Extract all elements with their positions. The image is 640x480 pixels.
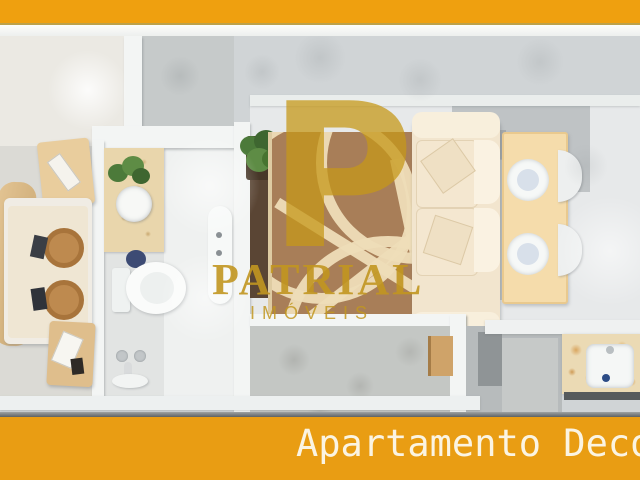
watermark-monogram: P (268, 78, 415, 278)
caption-text: Apartamento Deco (296, 424, 640, 465)
shower-head (112, 374, 148, 388)
entry-wall-block (478, 332, 502, 386)
wall-bottom (0, 396, 480, 410)
nightstand (46, 321, 95, 387)
round-tray-cushion (44, 228, 84, 268)
faucet-icon (606, 346, 614, 354)
wall-kitchen-top (485, 320, 640, 334)
sofa (412, 112, 504, 340)
round-tray-cushion (44, 280, 84, 320)
entry-floor-inner (502, 338, 558, 412)
plate (507, 233, 549, 275)
watermark-subtitle-text: IMÓVEIS (250, 304, 374, 322)
bathroom-upper-floor (142, 36, 234, 128)
wall-bathroom-top (92, 126, 234, 148)
duvet (8, 206, 88, 338)
floorplan-render: P PATRIAL IMÓVEIS (0, 36, 640, 412)
toilet (112, 262, 188, 316)
shower-fixture (110, 346, 156, 394)
plant-icon (108, 156, 152, 192)
sofa-back-cushion (474, 140, 500, 204)
top-orange-bar (0, 0, 640, 25)
kitchen-sink (586, 344, 634, 388)
drain-dispenser (602, 374, 610, 382)
dark-item (70, 358, 84, 375)
nightstand-item (47, 153, 81, 192)
watermark-brand-text: PATRIAL (212, 258, 425, 302)
caption-bar: Apartamento Deco (0, 417, 640, 480)
plate (507, 159, 549, 201)
counter-shadow-strip (564, 392, 640, 400)
listing-photo: P PATRIAL IMÓVEIS Apartamento Deco (0, 0, 640, 480)
sofa-armrest-top (412, 112, 500, 138)
entry-door (428, 336, 453, 376)
door-handle (216, 232, 222, 238)
bedside-item (31, 287, 48, 311)
sofa-back-cushion (474, 208, 500, 272)
top-white-strip (0, 25, 640, 36)
